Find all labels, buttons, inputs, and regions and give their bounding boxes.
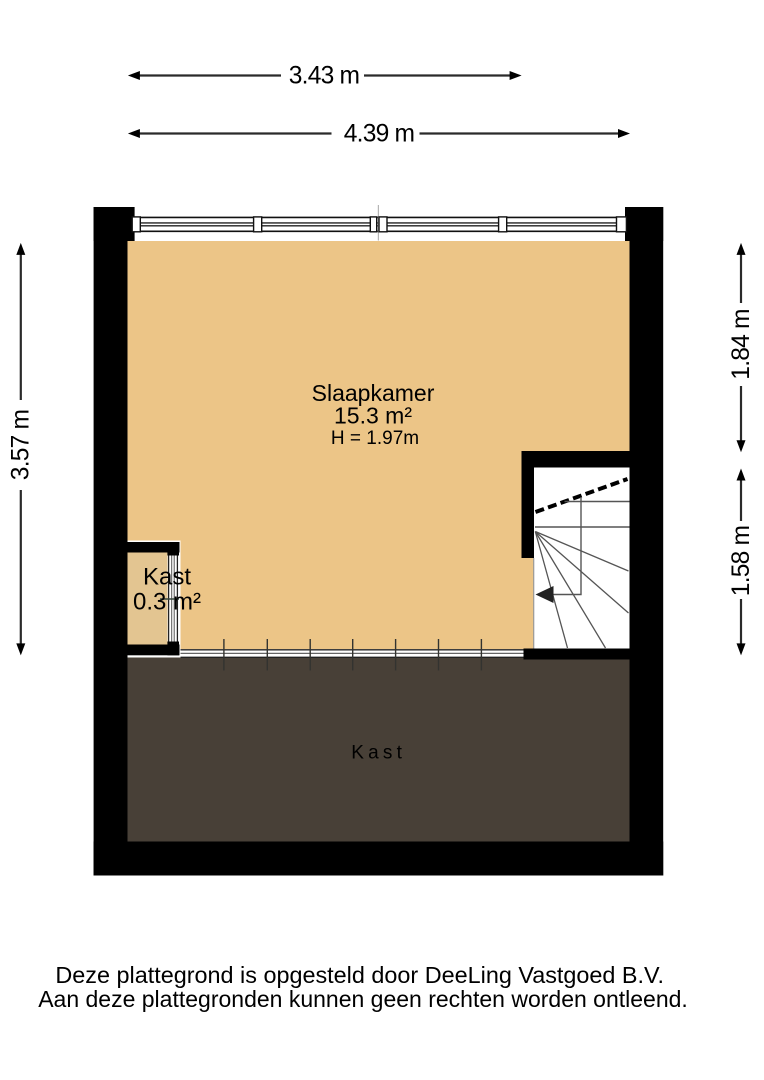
svg-text:1.84 m: 1.84 m	[728, 309, 755, 379]
svg-text:Aan deze plattegronden kunnen: Aan deze plattegronden kunnen geen recht…	[38, 986, 688, 1012]
svg-text:1.58 m: 1.58 m	[728, 526, 755, 596]
svg-text:Kast: Kast	[143, 564, 191, 591]
svg-text:H = 1.97m: H = 1.97m	[331, 428, 419, 449]
svg-text:3.57 m: 3.57 m	[8, 410, 35, 480]
svg-text:Kast: Kast	[351, 743, 406, 764]
svg-text:0.3 m²: 0.3 m²	[133, 589, 201, 616]
svg-text:Deze plattegrond is opgesteld: Deze plattegrond is opgesteld door DeeLi…	[55, 962, 664, 988]
svg-text:4.39 m: 4.39 m	[344, 121, 414, 148]
svg-text:15.3 m²: 15.3 m²	[334, 403, 412, 429]
svg-text:3.43 m: 3.43 m	[289, 63, 359, 90]
